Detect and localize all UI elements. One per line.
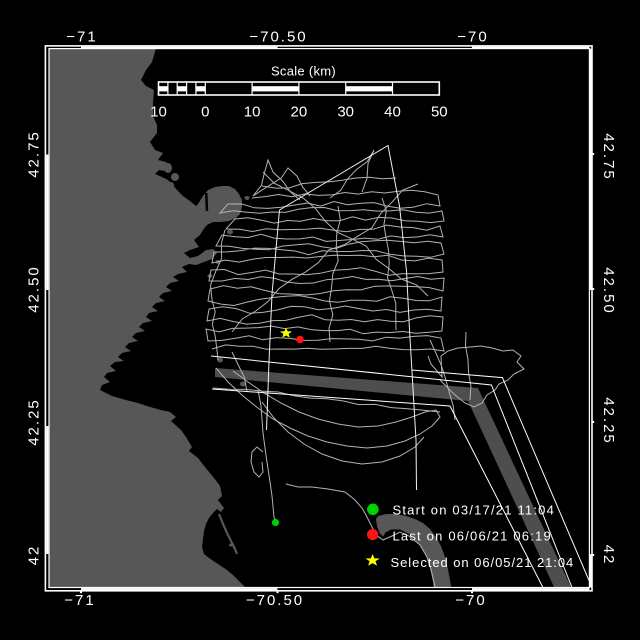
- svg-text:Scale (km): Scale (km): [271, 64, 336, 79]
- svg-text:42.25: 42.25: [26, 398, 43, 446]
- svg-text:10: 10: [244, 104, 261, 121]
- svg-text:−71: −71: [64, 592, 95, 609]
- svg-text:20: 20: [291, 104, 308, 121]
- svg-text:0: 0: [201, 104, 209, 121]
- svg-text:42: 42: [600, 545, 617, 566]
- svg-text:42.75: 42.75: [26, 130, 43, 178]
- svg-text:−70: −70: [457, 29, 488, 46]
- svg-text:−70.50: −70.50: [246, 592, 304, 609]
- svg-text:−71: −71: [66, 29, 97, 46]
- svg-text:42.50: 42.50: [600, 267, 617, 315]
- svg-text:42.50: 42.50: [26, 265, 43, 313]
- svg-text:Selected on 06/05/21 21:04: Selected on 06/05/21 21:04: [391, 555, 575, 570]
- svg-text:40: 40: [384, 104, 401, 121]
- svg-text:50: 50: [431, 104, 448, 121]
- svg-text:42.25: 42.25: [600, 397, 617, 445]
- svg-text:42.75: 42.75: [600, 133, 617, 181]
- svg-text:−70: −70: [455, 592, 486, 609]
- svg-text:Last on 06/06/21 06:19: Last on 06/06/21 06:19: [393, 529, 552, 544]
- svg-text:Start on 03/17/21 11:04: Start on 03/17/21 11:04: [393, 503, 556, 518]
- svg-text:30: 30: [337, 104, 354, 121]
- svg-text:−70.50: −70.50: [249, 29, 307, 46]
- svg-text:10: 10: [150, 104, 167, 121]
- svg-text:42: 42: [26, 545, 43, 566]
